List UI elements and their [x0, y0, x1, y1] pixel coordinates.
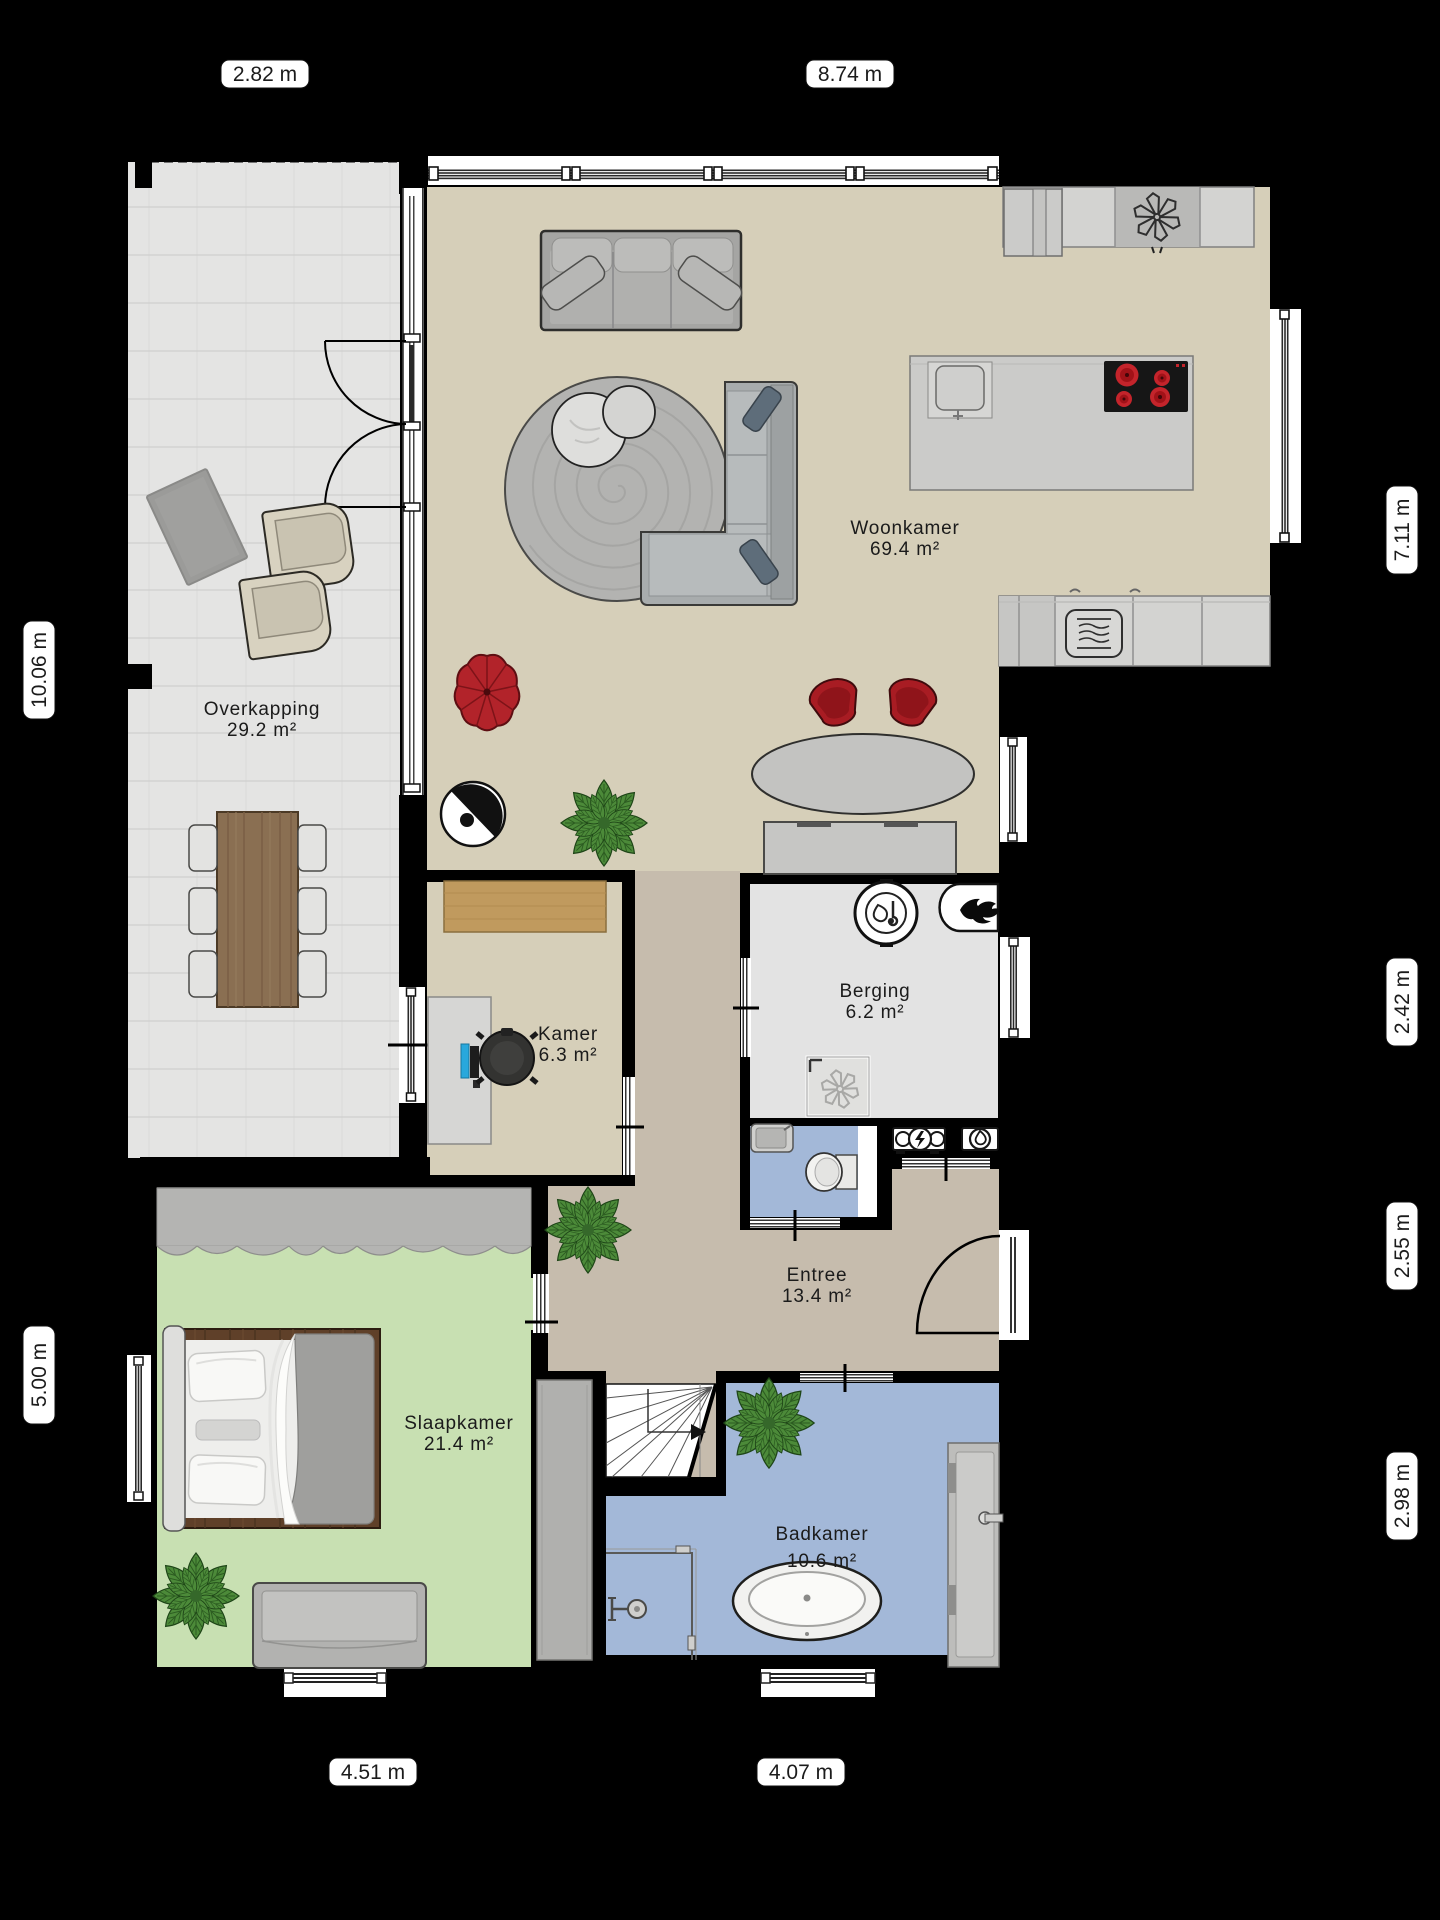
svg-text:21.4 m²: 21.4 m² [424, 1434, 494, 1455]
svg-text:8.74 m: 8.74 m [818, 63, 882, 86]
svg-text:Woonkamer: Woonkamer [850, 518, 959, 539]
svg-text:69.4 m²: 69.4 m² [870, 539, 940, 560]
svg-text:10.6 m²: 10.6 m² [787, 1551, 857, 1572]
svg-text:4.07 m: 4.07 m [769, 1761, 833, 1784]
svg-text:13.4 m²: 13.4 m² [782, 1286, 852, 1307]
svg-text:2.98 m: 2.98 m [1391, 1464, 1414, 1528]
svg-text:6.2 m²: 6.2 m² [846, 1002, 905, 1023]
svg-text:2.55 m: 2.55 m [1391, 1214, 1414, 1278]
svg-text:5.00 m: 5.00 m [28, 1343, 51, 1407]
svg-text:Badkamer: Badkamer [776, 1524, 869, 1545]
svg-text:4.51 m: 4.51 m [341, 1761, 405, 1784]
svg-text:2.82 m: 2.82 m [233, 63, 297, 86]
svg-text:Kamer: Kamer [538, 1024, 598, 1045]
svg-text:2.42 m: 2.42 m [1391, 970, 1414, 1034]
svg-text:10.06 m: 10.06 m [28, 632, 51, 708]
svg-text:6.3 m²: 6.3 m² [539, 1045, 598, 1066]
svg-text:Berging: Berging [839, 981, 910, 1002]
svg-text:Entree: Entree [787, 1265, 848, 1286]
svg-text:7.11 m: 7.11 m [1391, 499, 1414, 562]
svg-text:Overkapping: Overkapping [204, 699, 321, 720]
svg-text:Slaapkamer: Slaapkamer [404, 1413, 513, 1434]
svg-text:29.2 m²: 29.2 m² [227, 720, 297, 741]
